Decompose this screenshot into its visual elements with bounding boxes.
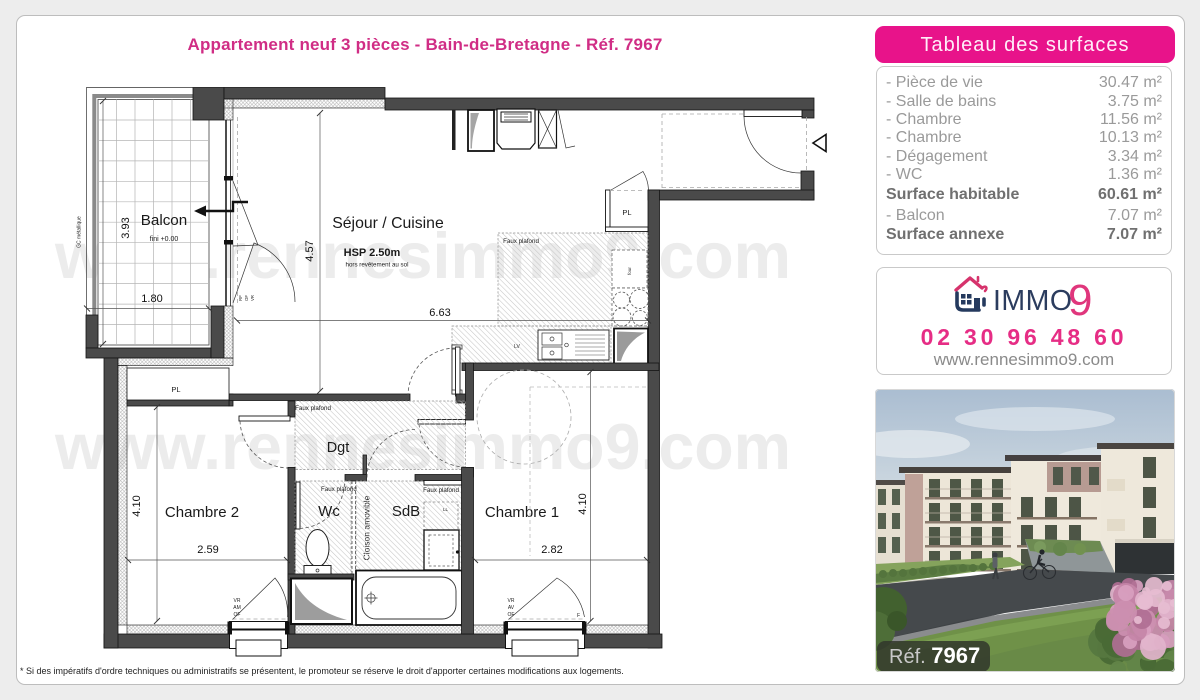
svg-text:Séjour / Cuisine: Séjour / Cuisine — [332, 215, 444, 232]
svg-text:LV: LV — [514, 344, 520, 350]
svg-text:Réf. 7967: Réf. 7967 — [889, 643, 980, 668]
svg-text:OF: OF — [244, 295, 249, 301]
svg-text:3.93: 3.93 — [120, 217, 132, 238]
svg-text:VR: VR — [234, 598, 241, 604]
svg-text:Wc: Wc — [318, 503, 340, 520]
svg-text:4.10: 4.10 — [577, 493, 589, 514]
svg-text:RF: RF — [238, 295, 243, 301]
svg-text:VR: VR — [250, 295, 255, 301]
svg-text:PL: PL — [622, 208, 631, 217]
svg-text:HSP 2.50m: HSP 2.50m — [344, 247, 401, 259]
svg-text:AM: AM — [233, 605, 241, 611]
svg-text:VR: VR — [508, 598, 515, 604]
svg-text:4.10: 4.10 — [131, 495, 143, 516]
svg-text:Faux plafond: Faux plafond — [295, 405, 331, 412]
svg-text:SdB: SdB — [392, 503, 420, 520]
svg-text:Faux plafond: Faux plafond — [423, 487, 459, 494]
svg-text:OF: OF — [508, 612, 515, 618]
svg-text:LL: LL — [443, 507, 449, 512]
svg-text:1.80: 1.80 — [141, 293, 162, 305]
svg-text:hors revêtement au sol: hors revêtement au sol — [346, 262, 409, 269]
svg-text:Chambre 2: Chambre 2 — [165, 504, 239, 521]
svg-text:fini +0.00: fini +0.00 — [150, 236, 179, 243]
svg-text:Dgt: Dgt — [327, 440, 350, 456]
svg-text:GC métallique: GC métallique — [77, 216, 83, 248]
svg-text:AV: AV — [508, 605, 515, 611]
svg-text:IMMO: IMMO — [993, 285, 1073, 317]
svg-text:2.59: 2.59 — [197, 544, 218, 556]
svg-text:2.82: 2.82 — [541, 544, 562, 556]
svg-text:Chambre 1: Chambre 1 — [485, 504, 559, 521]
svg-text:Faux plafond: Faux plafond — [503, 238, 539, 245]
svg-text:Balcon: Balcon — [141, 212, 187, 229]
svg-text:PL: PL — [171, 385, 180, 394]
svg-text:4.57: 4.57 — [304, 240, 316, 261]
svg-text:6.63: 6.63 — [429, 307, 450, 319]
svg-text:four: four — [627, 267, 632, 275]
svg-text:OF: OF — [234, 612, 241, 618]
svg-text:F: F — [577, 613, 580, 619]
svg-text:9: 9 — [1068, 276, 1092, 325]
